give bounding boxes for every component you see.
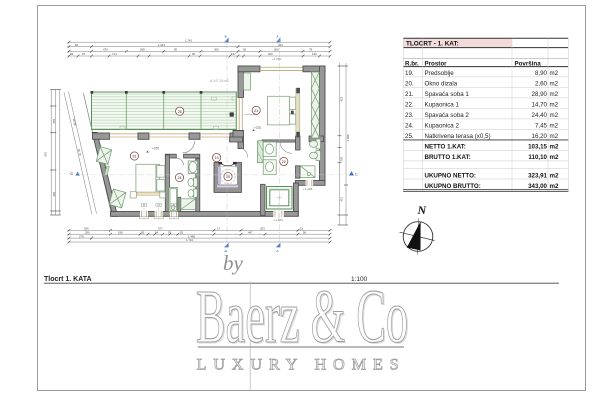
svg-text:434: 434 — [278, 43, 283, 47]
svg-text:BRUTTO 1.KAT:: BRUTTO 1.KAT: — [425, 154, 471, 161]
svg-text:17: 17 — [217, 227, 221, 231]
svg-text:55: 55 — [180, 230, 184, 234]
svg-text:92: 92 — [192, 52, 196, 56]
svg-text:377: 377 — [158, 227, 163, 231]
svg-text:84: 84 — [75, 43, 79, 47]
svg-text:16,20: 16,20 — [532, 133, 548, 140]
svg-text:78: 78 — [309, 48, 313, 52]
svg-text:505: 505 — [340, 156, 344, 161]
svg-text:276: 276 — [79, 234, 84, 238]
svg-text:1.013: 1.013 — [158, 43, 165, 47]
svg-text:7,45: 7,45 — [535, 122, 548, 129]
svg-text:447: 447 — [248, 230, 253, 234]
svg-text:Predsoblje: Predsoblje — [425, 70, 455, 77]
svg-text:14,70: 14,70 — [532, 101, 548, 108]
svg-text:C: C — [70, 171, 73, 176]
svg-text:+370: +370 — [152, 147, 159, 151]
svg-text:260: 260 — [268, 52, 273, 56]
svg-text:87: 87 — [82, 52, 86, 56]
svg-text:N: N — [417, 203, 428, 217]
svg-text:870: 870 — [44, 151, 48, 156]
svg-text:24.: 24. — [405, 122, 414, 129]
svg-text:260: 260 — [274, 48, 279, 52]
svg-text:323,91: 323,91 — [528, 173, 547, 180]
svg-text:23.: 23. — [405, 112, 414, 119]
svg-text:Kupaonica 1: Kupaonica 1 — [425, 101, 460, 108]
svg-text:206: 206 — [85, 230, 90, 234]
svg-text:22.: 22. — [405, 101, 414, 108]
svg-text:25.: 25. — [405, 133, 414, 140]
svg-text:1.742: 1.742 — [185, 38, 192, 42]
svg-text:Tlocrt 1. KATA: Tlocrt 1. KATA — [44, 276, 92, 283]
svg-text:+1.298: +1.298 — [303, 187, 313, 191]
svg-text:2,60: 2,60 — [535, 80, 548, 87]
svg-text:255: 255 — [52, 118, 56, 123]
svg-text:22: 22 — [282, 160, 286, 164]
svg-text:19.: 19. — [405, 70, 414, 77]
svg-text:m2: m2 — [550, 154, 560, 161]
svg-text:TLOCRT - 1. KAT:: TLOCRT - 1. KAT: — [406, 40, 459, 47]
svg-text:1.742: 1.742 — [186, 238, 193, 242]
svg-text:Natkrivena terasa (x0,5): Natkrivena terasa (x0,5) — [425, 133, 491, 140]
svg-text:21.: 21. — [405, 91, 414, 98]
svg-text:24,40: 24,40 — [532, 112, 548, 119]
svg-text:93: 93 — [70, 52, 74, 56]
svg-text:1.098: 1.098 — [346, 134, 350, 141]
svg-text:103,15: 103,15 — [528, 143, 547, 150]
svg-text:360: 360 — [214, 48, 219, 52]
svg-text:+370: +370 — [254, 126, 261, 130]
svg-text:C: C — [355, 173, 358, 177]
svg-text:by: by — [223, 251, 244, 275]
svg-text:Spavaća soba 2: Spavaća soba 2 — [425, 112, 470, 119]
svg-text:m2: m2 — [550, 91, 559, 98]
svg-text:8,90: 8,90 — [535, 70, 548, 77]
svg-text:296: 296 — [52, 191, 56, 196]
svg-text:m2: m2 — [550, 143, 560, 150]
svg-text:UKUPNO BRUTTO:: UKUPNO BRUTTO: — [425, 183, 481, 190]
svg-text:Okno dizala: Okno dizala — [425, 80, 458, 87]
svg-text:470: 470 — [103, 48, 108, 52]
svg-text:56: 56 — [303, 230, 307, 234]
svg-text:m2: m2 — [550, 70, 559, 77]
svg-text:110,10: 110,10 — [528, 154, 547, 161]
svg-text:93: 93 — [141, 230, 145, 234]
svg-text:21: 21 — [254, 109, 258, 113]
svg-text:UKUPNO NETTO:: UKUPNO NETTO: — [425, 173, 476, 180]
svg-text:20.: 20. — [405, 80, 414, 87]
svg-text:19: 19 — [215, 156, 219, 160]
svg-text:+1.280: +1.280 — [274, 218, 284, 222]
svg-text:m2: m2 — [550, 101, 559, 108]
svg-text:A 147.19 m2: A 147.19 m2 — [210, 79, 229, 83]
svg-text:m2: m2 — [550, 183, 560, 190]
svg-text:LUXURY HOMES: LUXURY HOMES — [197, 355, 406, 374]
svg-text:92: 92 — [243, 48, 247, 52]
svg-text:411: 411 — [340, 197, 344, 202]
svg-text:95: 95 — [174, 48, 178, 52]
svg-text:137: 137 — [231, 52, 236, 56]
svg-text:714: 714 — [112, 52, 117, 56]
svg-text:NETTO 1.KAT:: NETTO 1.KAT: — [425, 143, 466, 150]
svg-text:m2: m2 — [550, 122, 559, 129]
svg-text:423: 423 — [340, 96, 344, 101]
svg-text:m2: m2 — [550, 112, 559, 119]
svg-text:20: 20 — [226, 175, 230, 179]
svg-text:Kupaonica 2: Kupaonica 2 — [425, 122, 460, 129]
svg-text:28,90: 28,90 — [532, 91, 548, 98]
svg-text:54: 54 — [155, 230, 159, 234]
svg-text:203: 203 — [260, 227, 265, 231]
svg-text:343,00: 343,00 — [528, 183, 547, 190]
svg-text:+1.280: +1.280 — [272, 57, 282, 61]
svg-text:Spavaća soba 1: Spavaća soba 1 — [425, 91, 470, 98]
svg-text:m2: m2 — [550, 80, 559, 87]
svg-text:m2: m2 — [550, 133, 559, 140]
svg-text:24: 24 — [178, 176, 182, 180]
svg-text:m2: m2 — [550, 173, 560, 180]
svg-text:146: 146 — [312, 52, 317, 56]
svg-text:93: 93 — [168, 230, 172, 234]
svg-text:196: 196 — [118, 230, 123, 234]
svg-text:25: 25 — [178, 110, 182, 114]
svg-text:298: 298 — [140, 48, 145, 52]
svg-text:23: 23 — [132, 155, 136, 159]
